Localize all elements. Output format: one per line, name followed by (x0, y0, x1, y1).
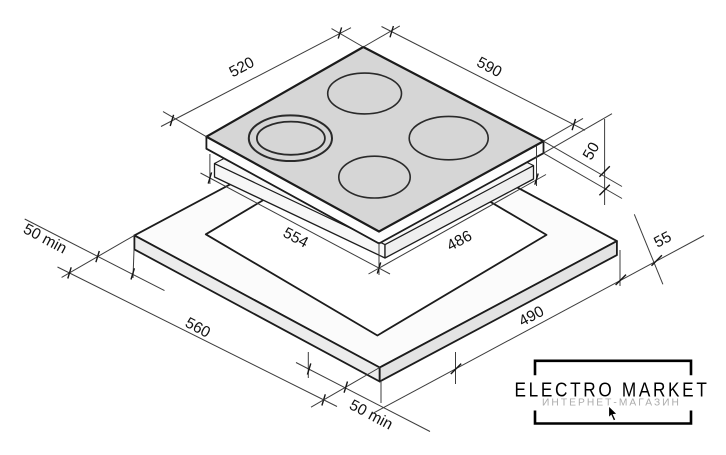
svg-text:ИНТЕРНЕТ-МАГАЗИН: ИНТЕРНЕТ-МАГАЗИН (542, 398, 681, 409)
